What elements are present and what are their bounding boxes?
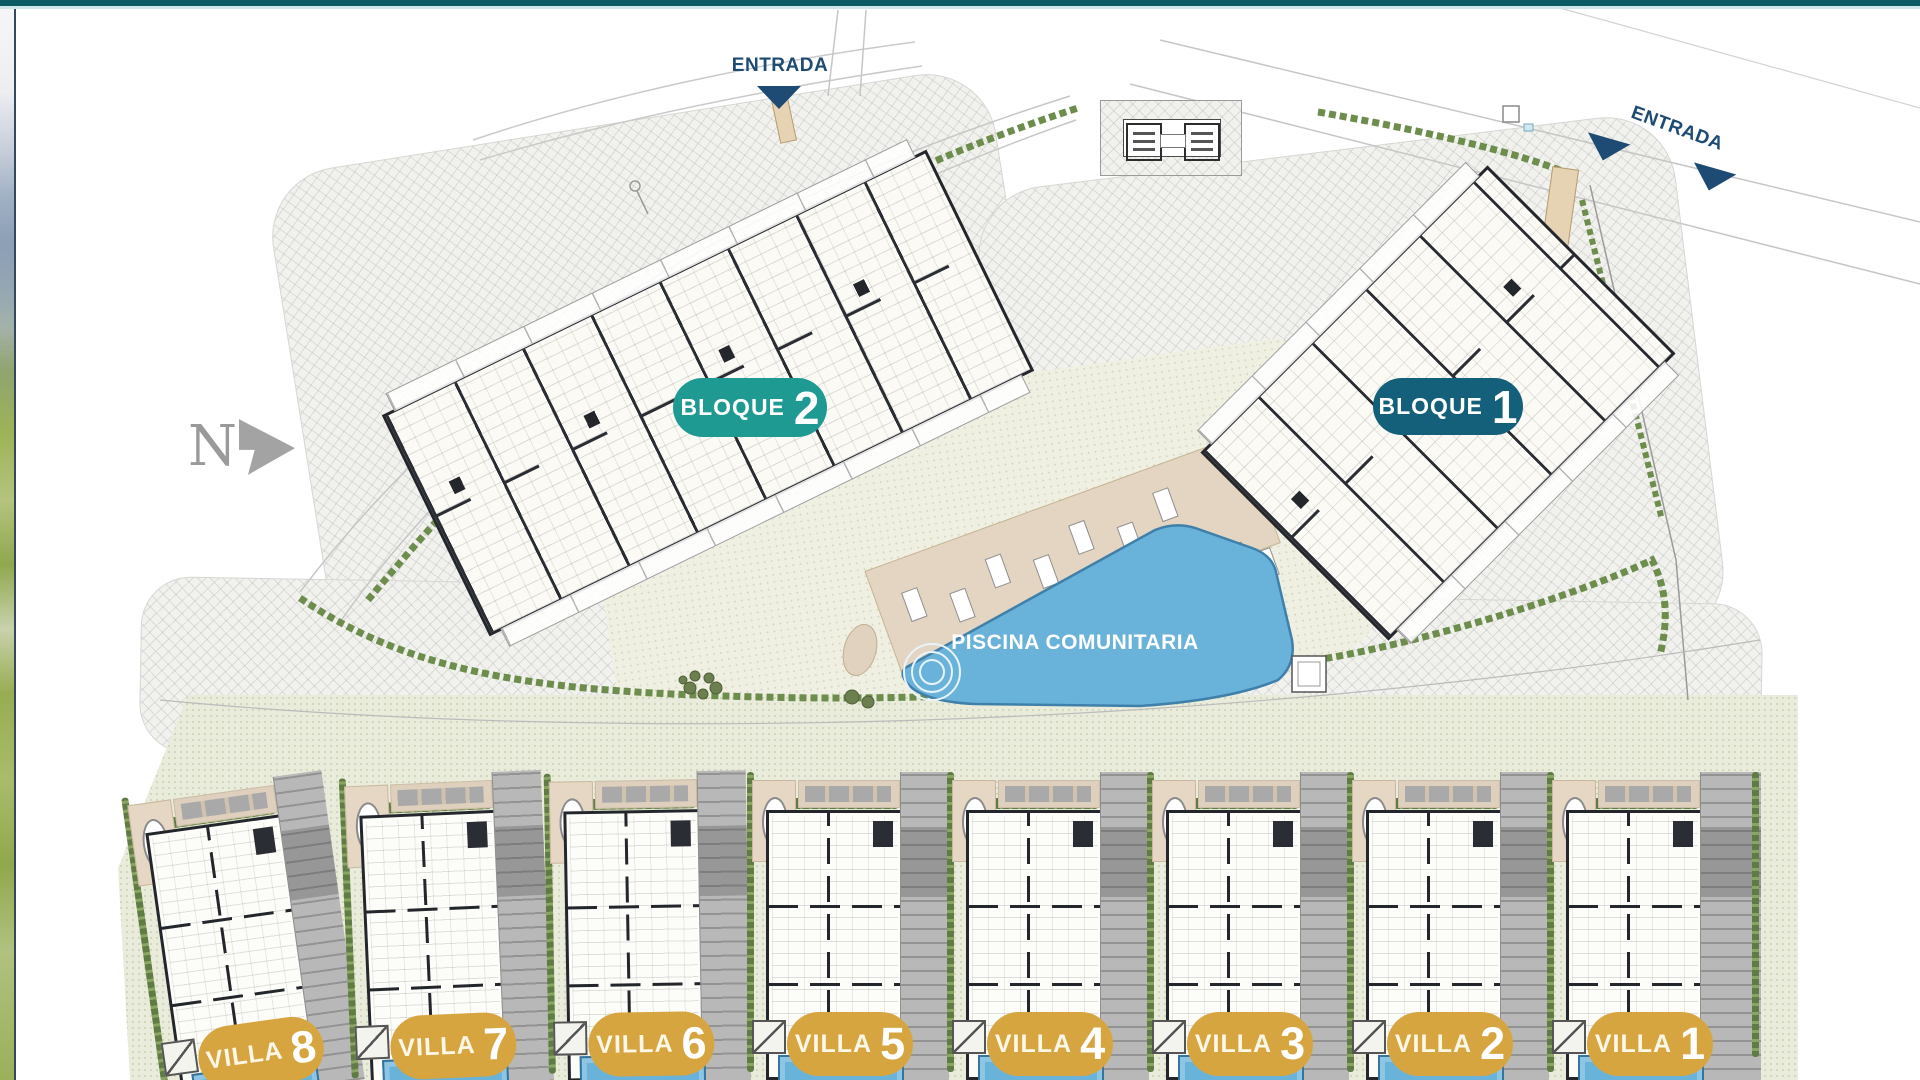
villa-1-plot: VILLA 1: [1550, 772, 1750, 1080]
north-indicator: N: [188, 418, 295, 476]
villa-3-plot: VILLA 3: [1150, 772, 1350, 1080]
driveway-steps: [495, 825, 546, 897]
villa-label: VILLA: [596, 1029, 674, 1059]
villa-number: 2: [1480, 1018, 1505, 1070]
interior-wall: [1168, 905, 1302, 908]
spa-box-icon: [1552, 1020, 1586, 1054]
driveway-steps: [1101, 827, 1149, 897]
pavilion-kiosk-left: [1126, 123, 1162, 161]
entrance-arrow-icon-2b: [1688, 162, 1737, 196]
villa-1-label-pill[interactable]: VILLA 1: [1587, 1012, 1713, 1076]
villa-number: 3: [1280, 1018, 1305, 1070]
spa-box-icon: [161, 1038, 199, 1076]
stair-core: [1673, 821, 1693, 847]
pavilion-building: [1123, 119, 1221, 157]
stair-core: [253, 826, 276, 855]
driveway-steps: [1501, 827, 1549, 897]
interior-wall: [1368, 905, 1502, 908]
villa-2-label-pill[interactable]: VILLA 2: [1387, 1012, 1513, 1076]
driveway-steps: [901, 827, 949, 897]
aerial-photo-strip: [0, 6, 16, 1080]
villa-number: 5: [880, 1018, 905, 1070]
hedge-right-boundary: [1752, 772, 1759, 1057]
bloque-2-label-pill[interactable]: BLOQUE 2: [673, 378, 827, 437]
top-accent-glow: [0, 6, 1920, 9]
villa-number: 8: [287, 1020, 319, 1075]
villa-label: VILLA: [995, 1030, 1072, 1059]
villa-5-plot: VILLA 5: [750, 772, 950, 1080]
villa-label: VILLA: [1395, 1030, 1472, 1059]
driveway-steps: [699, 825, 748, 896]
villa-pergola: [1598, 780, 1700, 808]
interior-wall: [768, 905, 902, 908]
villa-4-plot: VILLA 4: [950, 772, 1150, 1080]
bloque-2-label: BLOQUE: [681, 394, 785, 421]
pergola-blocks: [181, 792, 268, 820]
villa-label: VILLA: [1195, 1030, 1272, 1059]
interior-wall: [1368, 983, 1502, 986]
bloque-1-number: 1: [1492, 380, 1518, 434]
villa-number: 7: [482, 1018, 509, 1071]
villa-pergola: [390, 780, 493, 812]
stair-core: [467, 821, 488, 848]
driveway-steps: [281, 825, 338, 901]
spa-box-icon: [553, 1021, 588, 1056]
interior-wall: [1568, 905, 1702, 908]
pavilion-kiosk-right: [1184, 123, 1220, 161]
villa-3-label-pill[interactable]: VILLA 3: [1187, 1012, 1313, 1076]
villa-2-plot: VILLA 2: [1350, 772, 1550, 1080]
pergola-blocks: [1405, 786, 1491, 802]
interior-wall: [968, 983, 1102, 986]
spa-box-icon: [752, 1020, 786, 1054]
stair-core: [1273, 821, 1293, 847]
north-arrow-icon: [239, 418, 295, 476]
pergola-blocks: [1605, 786, 1691, 802]
spa-box-icon: [355, 1025, 390, 1060]
villa-number: 1: [1680, 1018, 1705, 1070]
entrance-pavilion: [1100, 100, 1242, 176]
villa-5-label-pill[interactable]: VILLA 5: [787, 1012, 913, 1076]
driveway-steps: [1301, 827, 1349, 897]
entrance-arrow-icon-1: [757, 86, 801, 109]
villa-7-plot: VILLA 7: [342, 770, 559, 1080]
villa-label: VILLA: [398, 1030, 476, 1062]
interior-wall: [768, 983, 902, 986]
villa-6-label-pill[interactable]: VILLA 6: [588, 1011, 715, 1077]
interior-wall: [1168, 983, 1302, 986]
spa-box-icon: [952, 1020, 986, 1054]
villa-pergola: [998, 780, 1100, 808]
stair-core: [1473, 821, 1493, 847]
bloque-1-label: BLOQUE: [1379, 393, 1483, 420]
villa-pergola: [798, 780, 900, 808]
stair-core: [873, 821, 893, 847]
villa-pergola: [595, 779, 697, 809]
villa-pergola: [1398, 780, 1500, 808]
villa-label: VILLA: [1595, 1030, 1672, 1059]
entrance-label-1: ENTRADA: [700, 55, 860, 77]
pergola-blocks: [805, 786, 891, 802]
site-plan-canvas: BLOQUE 2 BLOQUE 1 PISCINA COMUNITARIA EN…: [0, 0, 1920, 1080]
villa-7-label-pill[interactable]: VILLA 7: [389, 1011, 518, 1080]
pergola-blocks: [1205, 786, 1291, 802]
stair-core: [670, 820, 690, 846]
pool-label: PISCINA COMUNITARIA: [930, 631, 1220, 655]
interior-wall: [968, 905, 1102, 908]
villa-pergola: [1198, 780, 1300, 808]
villa-number: 6: [681, 1017, 707, 1069]
villa-label: VILLA: [204, 1036, 285, 1075]
bloque-2-number: 2: [794, 381, 820, 435]
interior-wall: [1568, 983, 1702, 986]
pavilion-table: [1160, 134, 1186, 148]
spa-box-icon: [1352, 1020, 1386, 1054]
villa-label: VILLA: [795, 1030, 872, 1059]
villa-number: 4: [1080, 1018, 1105, 1070]
bloque-1-label-pill[interactable]: BLOQUE 1: [1373, 378, 1523, 435]
villa-4-label-pill[interactable]: VILLA 4: [987, 1012, 1113, 1076]
villa-6-plot: VILLA 6: [547, 770, 754, 1080]
spa-box-icon: [1152, 1020, 1186, 1054]
stair-core: [1073, 821, 1093, 847]
pergola-blocks: [397, 786, 484, 806]
north-label: N: [188, 419, 237, 475]
pergola-blocks: [1005, 786, 1091, 802]
pergola-blocks: [602, 785, 688, 802]
